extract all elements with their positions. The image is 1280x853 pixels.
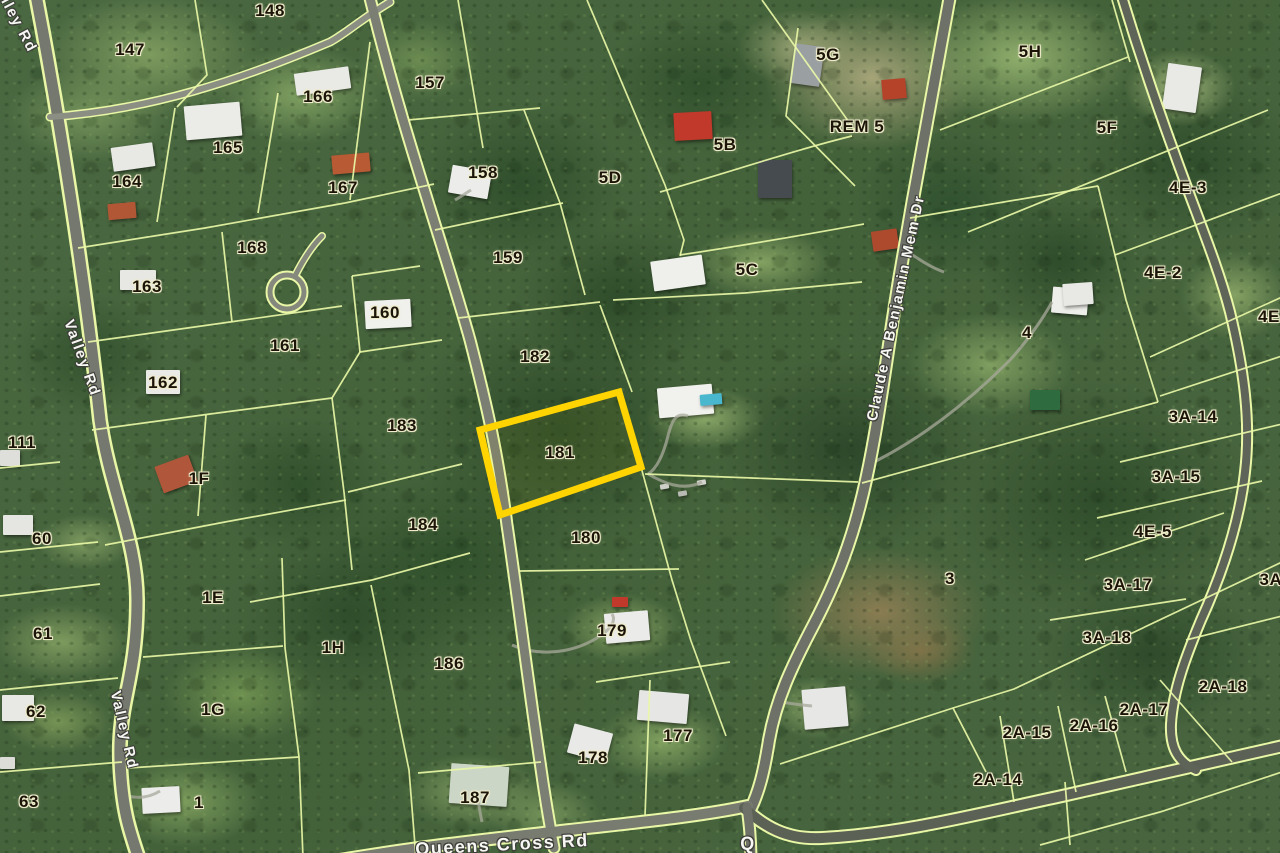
parcel-label-5C: 5C [736, 260, 759, 280]
parcel-label-2A-14: 2A-14 [974, 770, 1023, 790]
parcel-label-147: 147 [115, 40, 145, 60]
parcel-label-5B: 5B [714, 135, 737, 155]
parcel-label-3: 3 [945, 569, 955, 589]
parcel-label-183: 183 [387, 416, 417, 436]
parcel-label-4E-5: 4E-5 [1134, 522, 1172, 542]
parcel-label-4: 4 [1022, 323, 1032, 343]
parcel-label-179: 179 [597, 621, 627, 641]
parcel-label-3A-15: 3A-15 [1152, 467, 1201, 487]
parcel-label-187: 187 [460, 788, 490, 808]
parcel-label-157: 157 [415, 73, 445, 93]
parcel-label-163: 163 [132, 277, 162, 297]
parcel-label-5D: 5D [599, 168, 622, 188]
parcel-label-3A-14: 3A-14 [1169, 407, 1218, 427]
parcel-label-111: 111 [8, 433, 36, 453]
parcel-label-4E-3: 4E-3 [1169, 178, 1207, 198]
parcel-label-2A-18: 2A-18 [1199, 677, 1248, 697]
parcel-label-5H: 5H [1019, 42, 1042, 62]
parcel-label-1: 1 [194, 793, 204, 813]
road-label: Valley Rd [0, 0, 40, 55]
parcel-label-4E-2: 4E-2 [1144, 263, 1182, 283]
parcel-label-168: 168 [237, 238, 267, 258]
parcel-label-159: 159 [493, 248, 523, 268]
road-label: Q [740, 834, 756, 853]
parcel-label-4E-: 4E- [1258, 307, 1280, 327]
parcel-label-167: 167 [328, 178, 358, 198]
parcel-label-158: 158 [468, 163, 498, 183]
parcel-label-5G: 5G [816, 45, 840, 65]
parcel-label-3A-: 3A- [1260, 570, 1280, 590]
parcel-label-1E: 1E [202, 588, 224, 608]
parcel-label-160: 160 [370, 303, 400, 323]
road-label: Valley Rd [107, 689, 142, 771]
parcel-label-184: 184 [408, 515, 438, 535]
road-label: Claude A Benjamin Mem Dr [864, 193, 929, 422]
parcel-label-62: 62 [26, 702, 46, 722]
parcel-label-1H: 1H [322, 638, 345, 658]
parcel-label-5F: 5F [1097, 118, 1118, 138]
parcel-label-3A-18: 3A-18 [1083, 628, 1132, 648]
parcel-label-181: 181 [545, 443, 575, 463]
road-label: Valley Rd [60, 317, 103, 398]
parcel-label-1G: 1G [201, 700, 225, 720]
parcel-label-178: 178 [578, 748, 608, 768]
parcel-label-REM-5: REM 5 [830, 117, 884, 137]
parcel-label-180: 180 [571, 528, 601, 548]
parcel-label-186: 186 [434, 654, 464, 674]
parcel-label-148: 148 [255, 1, 285, 21]
parcel-label-3A-17: 3A-17 [1104, 575, 1153, 595]
parcel-map-canvas[interactable]: 1471481571661651641675D5B5GREM 55H5F4E-3… [0, 0, 1280, 853]
parcel-label-162: 162 [148, 373, 178, 393]
parcel-label-2A-17: 2A-17 [1120, 700, 1169, 720]
parcel-label-164: 164 [112, 172, 142, 192]
parcel-label-2A-16: 2A-16 [1070, 716, 1119, 736]
parcel-label-165: 165 [213, 138, 243, 158]
parcel-label-166: 166 [303, 87, 333, 107]
road-label: Queens Cross Rd [415, 830, 589, 853]
parcel-label-61: 61 [33, 624, 53, 644]
parcel-label-182: 182 [520, 347, 550, 367]
parcel-label-177: 177 [663, 726, 693, 746]
labels-layer: 1471481571661651641675D5B5GREM 55H5F4E-3… [0, 0, 1280, 853]
parcel-label-63: 63 [19, 792, 39, 812]
parcel-label-161: 161 [270, 336, 300, 356]
parcel-label-60: 60 [32, 529, 52, 549]
parcel-label-1F: 1F [189, 469, 210, 489]
parcel-label-2A-15: 2A-15 [1003, 723, 1052, 743]
